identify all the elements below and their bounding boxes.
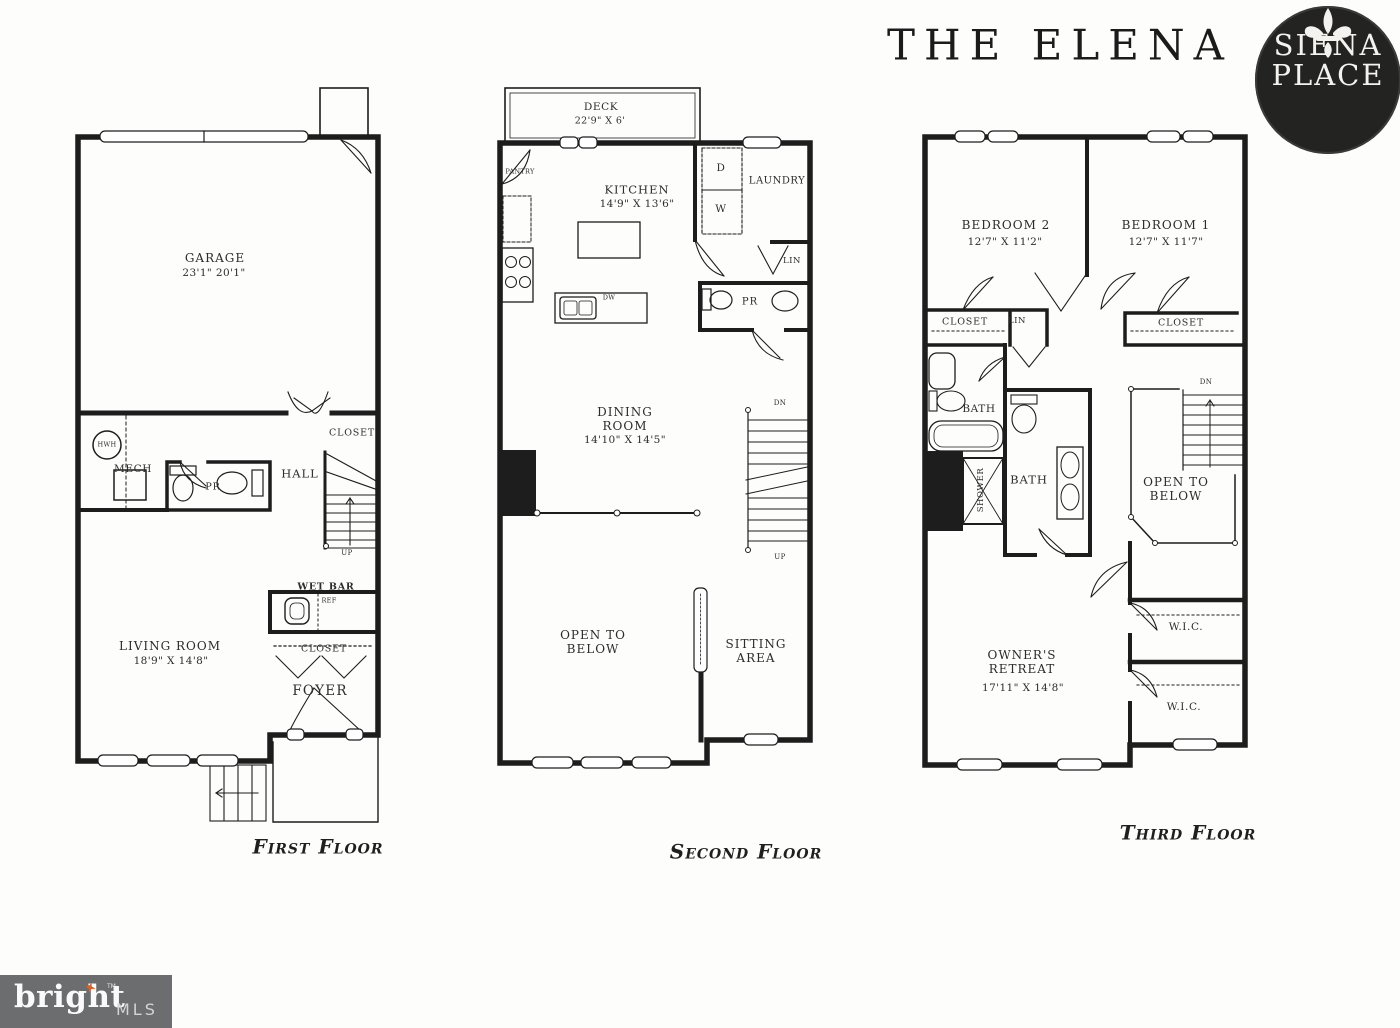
powder-room-label-f2: PR <box>742 296 758 308</box>
kitchen-dims: 14'9" X 13'6" <box>600 198 675 210</box>
entry-stoop <box>320 88 368 138</box>
first-floor-walls <box>78 88 378 822</box>
deck-dims: 22'9" X 6' <box>575 117 626 128</box>
mech-label: MECH <box>114 463 152 475</box>
page-title: THE ELENA <box>887 21 1233 70</box>
shower-wall-block <box>925 451 963 531</box>
closet-left-label: CLOSET <box>942 318 988 329</box>
bath-lower-label: BATH <box>1010 473 1048 486</box>
garage-dims: 23'1" 20'1" <box>182 267 245 279</box>
washer-label: W <box>715 203 726 215</box>
dining-room-label: DINING ROOM <box>588 406 662 434</box>
brightmls-tm: TM <box>107 983 116 990</box>
closet-right-label: CLOSET <box>1158 319 1204 330</box>
deck-label: DECK <box>584 101 618 113</box>
stairs-dn-label-f2: DN <box>774 399 787 407</box>
shower-label: SHOWER <box>977 468 987 513</box>
first-floor-title: First Floor <box>253 836 384 859</box>
closet-upper-label: CLOSET <box>329 429 375 440</box>
floorplan-sheet: THE ELENA SIENA PLACE GARAGE 23'1" 20'1"… <box>0 0 1400 1028</box>
stairs-up <box>324 454 379 549</box>
pantry-label: PANTRY <box>505 168 534 175</box>
garage-label: GARAGE <box>185 252 245 266</box>
dryer-label: D <box>716 162 725 174</box>
chimney <box>500 450 536 516</box>
stairs-dn-label-f3: DN <box>1200 378 1213 386</box>
stairs-up-label-f1: UP <box>341 549 352 557</box>
refrigerator-label: REF <box>321 597 336 604</box>
owners-retreat-label: OWNER'S RETREAT <box>979 649 1065 677</box>
washer-dryer <box>702 148 742 234</box>
porch <box>273 738 378 822</box>
kitchen-fixtures <box>502 196 647 323</box>
kitchen-island <box>578 222 640 258</box>
wet-bar-sink <box>285 598 309 624</box>
bedroom1-dims: 12'7" X 11'7" <box>1129 236 1204 248</box>
hall-label: HALL <box>281 467 319 480</box>
stairs-down <box>1183 390 1245 470</box>
dining-room-dims: 14'10" X 14'5" <box>584 434 666 446</box>
bedroom2-label: BEDROOM 2 <box>962 219 1051 233</box>
living-room-label: LIVING ROOM <box>119 640 221 654</box>
wic-upper-label: W.I.C. <box>1169 621 1203 633</box>
exterior-steps <box>210 765 266 821</box>
stairs <box>746 408 813 553</box>
stairs-up-label-f2: UP <box>774 553 785 561</box>
closet-lower-label: CLOSET <box>301 645 347 656</box>
bath-upper-label: BATH <box>962 403 995 415</box>
dishwasher-label: DW <box>603 294 616 301</box>
wet-bar-label: WET BAR <box>297 583 354 594</box>
third-floor-plan <box>905 125 1265 785</box>
kitchen-label: KITCHEN <box>604 183 669 196</box>
wic-lower-label: W.I.C. <box>1167 701 1201 713</box>
linen-label-f3: LIN <box>1008 317 1026 327</box>
first-floor-windows <box>98 131 363 766</box>
powder-room-label-f1: PR <box>205 483 220 494</box>
siena-place-badge: SIENA PLACE <box>1255 6 1400 154</box>
bath-lower-fixtures <box>1011 395 1083 519</box>
linen-label-f2: LIN <box>783 257 801 267</box>
owners-retreat-dims: 17'11" X 14'8" <box>982 682 1064 694</box>
third-floor-title: Third Floor <box>1120 822 1256 845</box>
badge-text-bottom: PLACE <box>1271 60 1384 90</box>
water-heater-label: HWH <box>98 441 117 448</box>
foyer-label: FOYER <box>292 684 347 700</box>
open-below-label-f2: OPEN TO BELOW <box>547 629 639 657</box>
brightmls-mls: MLS <box>116 1000 158 1019</box>
fleur-de-lis-icon <box>1300 6 1356 58</box>
living-room-dims: 18'9" X 14'8" <box>134 655 209 667</box>
first-floor-plan <box>60 80 400 860</box>
second-floor-windows <box>532 137 781 768</box>
bedroom2-dims: 12'7" X 11'2" <box>968 236 1043 248</box>
bedroom1-label: BEDROOM 1 <box>1122 219 1211 233</box>
laundry-label: LAUNDRY <box>749 175 805 187</box>
open-below-label-f3: OPEN TO BELOW <box>1135 476 1217 504</box>
sitting-area-label: SITTING AREA <box>721 638 791 666</box>
second-floor-title: Second Floor <box>670 841 822 864</box>
